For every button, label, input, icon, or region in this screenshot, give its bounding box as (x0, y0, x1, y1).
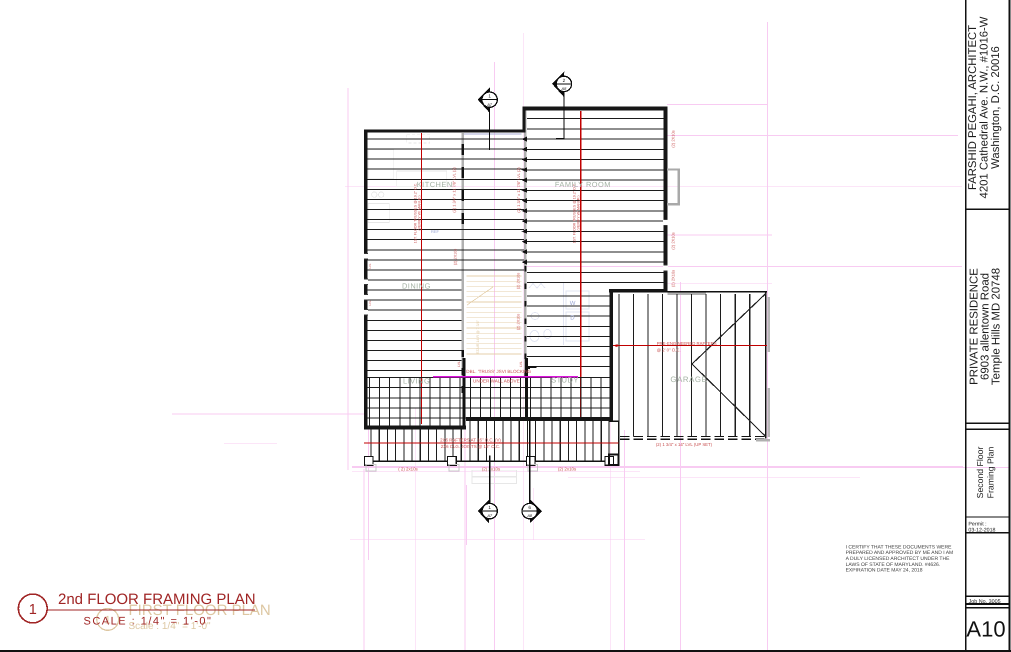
svg-text:W: W (570, 300, 576, 307)
svg-text:GARAGE: GARAGE (670, 375, 707, 384)
svg-text:LVL: LVL (368, 263, 372, 268)
svg-text:(2) 2X10s: (2) 2X10s (670, 270, 675, 287)
svg-text:2nd FLOOR FRAMING PLAN: 2nd FLOOR FRAMING PLAN (58, 591, 256, 608)
svg-text:REF: REF (431, 229, 440, 234)
svg-text:(2) 1 3/4" x 11 7/8" LVL (2): (2) 1 3/4" x 11 7/8" LVL (2) (516, 167, 521, 213)
svg-text:2: 2 (563, 78, 566, 83)
svg-text:2X6 CLG. JOISTS @ 16" O.C.: 2X6 CLG. JOISTS @ 16" O.C. (441, 444, 500, 449)
svg-text:1: 1 (29, 602, 37, 618)
svg-text:A7: A7 (486, 513, 493, 518)
svg-text:Second Floor: Second Floor (975, 447, 985, 499)
svg-text:LIVING: LIVING (403, 376, 430, 385)
svg-text:FARSHID PEGAHI, ARCHITECT: FARSHID PEGAHI, ARCHITECT (967, 25, 979, 190)
svg-text:03-12-2018: 03-12-2018 (968, 528, 995, 534)
svg-text:KITCHEN: KITCHEN (417, 180, 453, 189)
svg-text:(2) 2x10s: (2) 2x10s (482, 467, 501, 472)
svg-text:UNDER WALL ABOVE: UNDER WALL ABOVE (473, 378, 520, 383)
svg-text:Washington, D.C. 20016: Washington, D.C. 20016 (990, 46, 1002, 169)
svg-text:STAIR 14 R @ 7 3/4": STAIR 14 R @ 7 3/4" (476, 319, 480, 354)
svg-text:(2) 1 3/4" x 11 7/8" LVL (2): (2) 1 3/4" x 11 7/8" LVL (2) (451, 167, 456, 213)
svg-text:SCALE : 1/4" = 1'-0": SCALE : 1/4" = 1'-0" (84, 616, 213, 628)
svg-text:(2) 2X10s: (2) 2X10s (670, 130, 675, 147)
svg-text:(2) 2X10s: (2) 2X10s (670, 232, 675, 249)
svg-text:(VERIFY W/ MANUF.): (VERIFY W/ MANUF.) (576, 195, 580, 230)
svg-text:A7: A7 (486, 102, 493, 107)
svg-text:LVL: LVL (368, 300, 372, 305)
svg-text:4201 Cathedral Ave. N.W., #101: 4201 Cathedral Ave. N.W., #1016-W (979, 16, 991, 198)
svg-text:LVL: LVL (457, 361, 461, 367)
svg-text:(2) 2x10s: (2) 2x10s (558, 467, 577, 472)
svg-text:Job No. 3005: Job No. 3005 (969, 599, 1001, 605)
svg-text:EXPIRATION DATE MAY 24, 2018: EXPIRATION DATE MAY 24, 2018 (846, 568, 923, 574)
svg-text:FAMILY ROOM: FAMILY ROOM (555, 180, 611, 189)
svg-text:1: 1 (488, 94, 491, 99)
svg-text:(2) 2X10s: (2) 2X10s (453, 249, 457, 266)
svg-text:Permit :: Permit : (968, 521, 986, 527)
svg-text:A8: A8 (526, 513, 533, 518)
svg-text:1: 1 (488, 505, 491, 510)
svg-text:STUDY: STUDY (551, 375, 579, 384)
svg-text:Temple Hills MD 20748: Temple Hills MD 20748 (990, 268, 1002, 385)
svg-text:Framing Plan: Framing Plan (986, 447, 996, 499)
svg-text:6: 6 (528, 505, 531, 510)
svg-text:(2) 2X10s: (2) 2X10s (517, 273, 521, 290)
svg-text:D: D (570, 314, 575, 321)
svg-text:DINING: DINING (402, 282, 431, 291)
svg-text:( 2) 2x10s: ( 2) 2x10s (398, 467, 418, 472)
svg-text:LVL: LVL (519, 361, 523, 367)
svg-text:PRE-ENGINEERED RAFTERS: PRE-ENGINEERED RAFTERS (657, 341, 717, 346)
svg-text:(2) 2X10s: (2) 2X10s (517, 314, 521, 331)
svg-text:@ 2' 0" O.C.: @ 2' 0" O.C. (657, 348, 681, 353)
svg-text:(VERIFY W/ MANUF.): (VERIFY W/ MANUF.) (417, 195, 421, 230)
svg-text:A10: A10 (966, 617, 1005, 642)
svg-text:2X6 RAFTERS AT 16" O.C. (V): 2X6 RAFTERS AT 16" O.C. (V) (440, 438, 501, 443)
svg-text:DBL. 'TRUSS' JSVI BLOCKING: DBL. 'TRUSS' JSVI BLOCKING (466, 369, 531, 374)
svg-text:(2) 1 3/4" x 14" LVL (UP SET): (2) 1 3/4" x 14" LVL (UP SET) (656, 442, 713, 447)
svg-text:A8: A8 (561, 86, 568, 91)
